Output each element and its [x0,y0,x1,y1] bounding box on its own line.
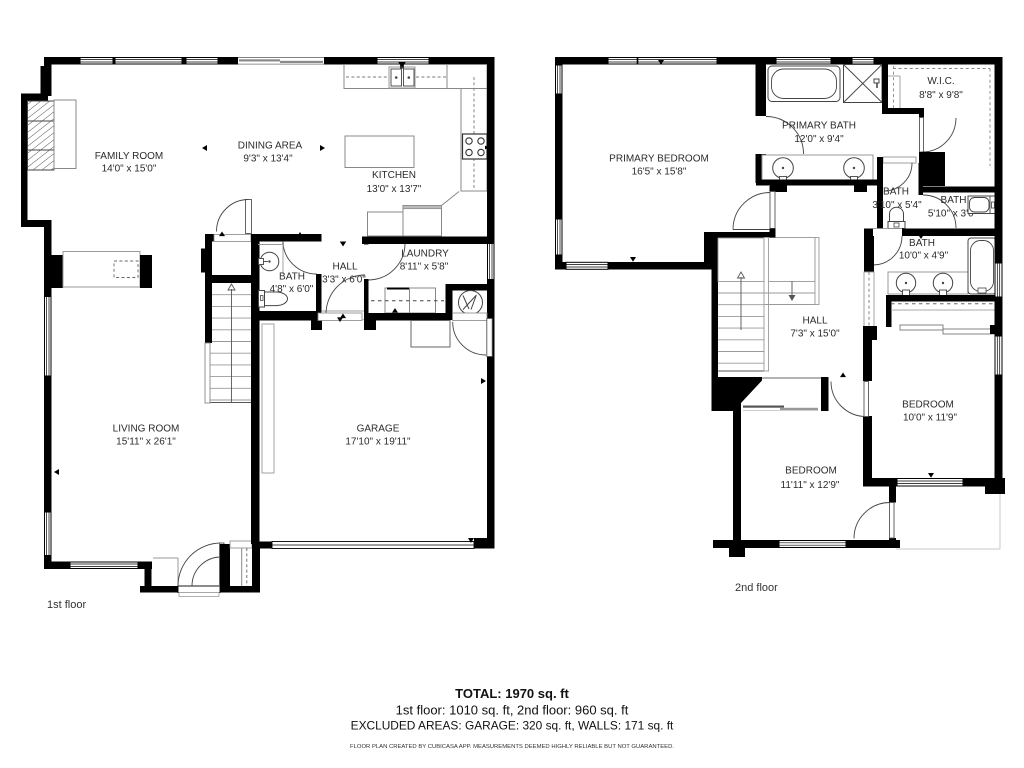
svg-text:12'0" x 9'4": 12'0" x 9'4" [794,134,844,145]
svg-text:13'0" x 13'7": 13'0" x 13'7" [367,184,422,195]
svg-text:10'0" x 11'9": 10'0" x 11'9" [903,413,958,424]
svg-text:W.I.C.: W.I.C. [927,76,954,87]
svg-text:FLOOR PLAN CREATED BY CUBICASA: FLOOR PLAN CREATED BY CUBICASA APP. MEAS… [350,744,674,750]
svg-text:9'3" x 13'4": 9'3" x 13'4" [243,154,293,165]
svg-text:15'11" x 26'1": 15'11" x 26'1" [116,437,176,448]
svg-text:1st floor: 1st floor [47,599,86,611]
svg-text:16'5" x 15'8": 16'5" x 15'8" [632,167,687,178]
svg-text:KITCHEN: KITCHEN [372,170,416,181]
svg-text:TOTAL: 1970 sq. ft: TOTAL: 1970 sq. ft [455,686,569,701]
svg-text:17'10" x 19'11": 17'10" x 19'11" [345,437,411,448]
svg-text:4'8" x 6'0": 4'8" x 6'0" [270,284,314,295]
svg-text:EXCLUDED AREAS: GARAGE: 320 sq: EXCLUDED AREAS: GARAGE: 320 sq. ft, WALL… [351,719,674,733]
svg-text:GARAGE: GARAGE [357,424,400,435]
svg-text:3'3" x 6'0": 3'3" x 6'0" [322,275,366,286]
svg-text:BATH: BATH [941,195,967,206]
svg-text:2nd floor: 2nd floor [735,582,778,594]
svg-text:LIVING ROOM: LIVING ROOM [113,424,180,435]
svg-text:PRIMARY BATH: PRIMARY BATH [782,121,856,132]
svg-text:LAUNDRY: LAUNDRY [401,249,449,260]
svg-text:FAMILY ROOM: FAMILY ROOM [95,151,164,162]
svg-text:7'3" x 15'0": 7'3" x 15'0" [790,329,840,340]
svg-text:11'11" x 12'9": 11'11" x 12'9" [781,480,840,491]
svg-text:8'8" x 9'8": 8'8" x 9'8" [919,90,963,101]
svg-text:10'0" x 4'9": 10'0" x 4'9" [899,251,949,262]
svg-text:HALL: HALL [802,316,827,327]
svg-text:14'0" x 15'0": 14'0" x 15'0" [102,164,157,175]
svg-text:8'11" x 5'8": 8'11" x 5'8" [400,262,449,273]
svg-text:BEDROOM: BEDROOM [785,466,837,477]
svg-text:PRIMARY BEDROOM: PRIMARY BEDROOM [609,154,709,165]
svg-text:1st floor: 1010 sq. ft, 2nd fl: 1st floor: 1010 sq. ft, 2nd floor: 960 s… [396,703,629,718]
svg-text:BATH: BATH [909,238,935,249]
svg-text:BEDROOM: BEDROOM [902,400,954,411]
svg-text:DINING AREA: DINING AREA [238,141,303,152]
svg-text:HALL: HALL [332,262,357,273]
svg-text:BATH: BATH [279,272,305,283]
svg-text:BATH: BATH [883,187,909,198]
